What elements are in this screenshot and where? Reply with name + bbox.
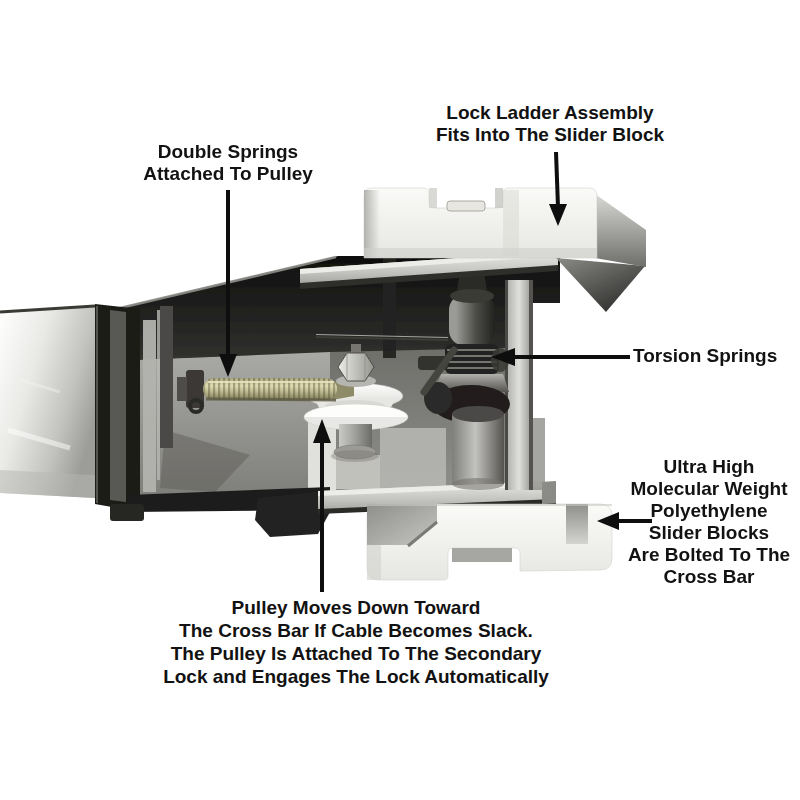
label-torsion-springs: Torsion Springs — [633, 345, 800, 367]
inner-wall-edge — [143, 320, 156, 492]
top-block-left-shade — [364, 190, 380, 258]
lock-cylinder — [452, 414, 504, 484]
slider-channel — [505, 280, 545, 490]
top-block-notch-tab — [447, 201, 485, 211]
label-lock-ladder-assembly: Lock Ladder Assembly Fits Into The Slide… — [370, 102, 730, 146]
top-slider-block — [364, 188, 646, 267]
spring-anchor-plate — [177, 377, 187, 401]
interior-patch — [380, 428, 446, 488]
top-block-bottom-shade — [364, 248, 597, 258]
bottom-block-slot — [566, 504, 588, 544]
spring-anchor-post-edge — [157, 310, 160, 480]
torsion-springs-arrow — [491, 348, 630, 366]
top-block-notch-shade — [503, 190, 519, 256]
label-pulley-behavior: Pulley Moves Down Toward The Cross Bar I… — [155, 596, 557, 688]
top-block-side-face — [595, 194, 646, 267]
label-double-springs: Double Springs Attached To Pulley — [68, 141, 388, 185]
diagram-page: Lock Ladder Assembly Fits Into The Slide… — [0, 0, 800, 800]
lock-cylinder-bottom — [452, 478, 504, 490]
spring-anchor-post — [160, 306, 173, 448]
top-block-face — [364, 188, 597, 258]
plate-end-shadow — [556, 258, 645, 312]
bottom-block-notch-shade — [452, 548, 512, 562]
label-slider-blocks: Ultra High Molecular Weight Polyethylene… — [609, 456, 800, 588]
left-access-door — [0, 306, 95, 498]
notch-side-shade — [495, 188, 503, 208]
pulley-shaft-shadow — [331, 450, 379, 462]
frame-foot — [110, 504, 144, 521]
notch-side-shade — [429, 188, 437, 208]
spring-shadow-edge — [206, 399, 336, 400]
torsion-bell-top — [450, 289, 494, 303]
lock-cylinder-top — [452, 406, 504, 422]
bottom-slider-block — [367, 504, 612, 580]
bolt-stud — [351, 344, 361, 353]
bottom-block-left-shade — [367, 545, 381, 580]
frame-post-face — [110, 310, 126, 502]
